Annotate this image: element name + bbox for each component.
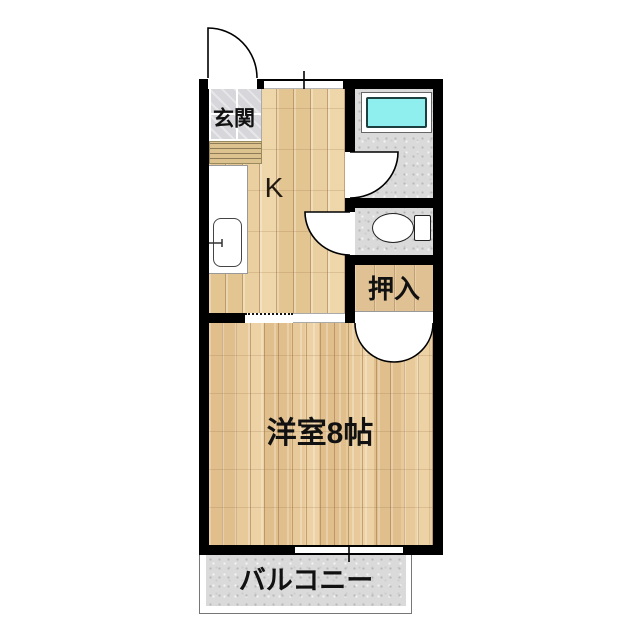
kitchen-label: K bbox=[265, 174, 284, 202]
entrance-step bbox=[209, 141, 262, 164]
entrance-door-opening bbox=[208, 79, 257, 89]
wall-bottom-left bbox=[199, 545, 295, 555]
entrance-label: 玄関 bbox=[213, 109, 255, 130]
toilet-bowl bbox=[372, 213, 414, 243]
bathtub bbox=[366, 97, 427, 128]
floor-plan: 玄関 K 押入 洋室8帖 バルコニー bbox=[0, 0, 640, 640]
wall-toilet-closet bbox=[345, 255, 443, 265]
entrance-door-arc bbox=[208, 28, 257, 78]
balcony-window bbox=[295, 545, 403, 555]
main-room-label: 洋室8帖 bbox=[267, 419, 374, 449]
toilet-door-opening bbox=[345, 212, 355, 255]
wall-bath-toilet bbox=[345, 198, 443, 208]
closet-door-opening bbox=[355, 311, 433, 323]
sliding-door-opening bbox=[293, 313, 345, 323]
closet-label: 押入 bbox=[368, 276, 420, 302]
balcony-label: バルコニー bbox=[239, 568, 373, 595]
wall-right bbox=[433, 79, 443, 555]
bathroom-door-opening bbox=[345, 152, 355, 198]
toilet-tank bbox=[414, 215, 431, 241]
sliding-door-track bbox=[245, 313, 293, 323]
kitchen-window bbox=[264, 79, 343, 89]
kitchen-counter bbox=[209, 165, 248, 274]
wall-top-mid bbox=[257, 79, 264, 89]
kitchen-sink bbox=[213, 218, 242, 267]
wall-bottom-right bbox=[403, 545, 443, 555]
wall-top-right bbox=[343, 79, 443, 89]
wall-kitchen-room bbox=[199, 313, 245, 323]
